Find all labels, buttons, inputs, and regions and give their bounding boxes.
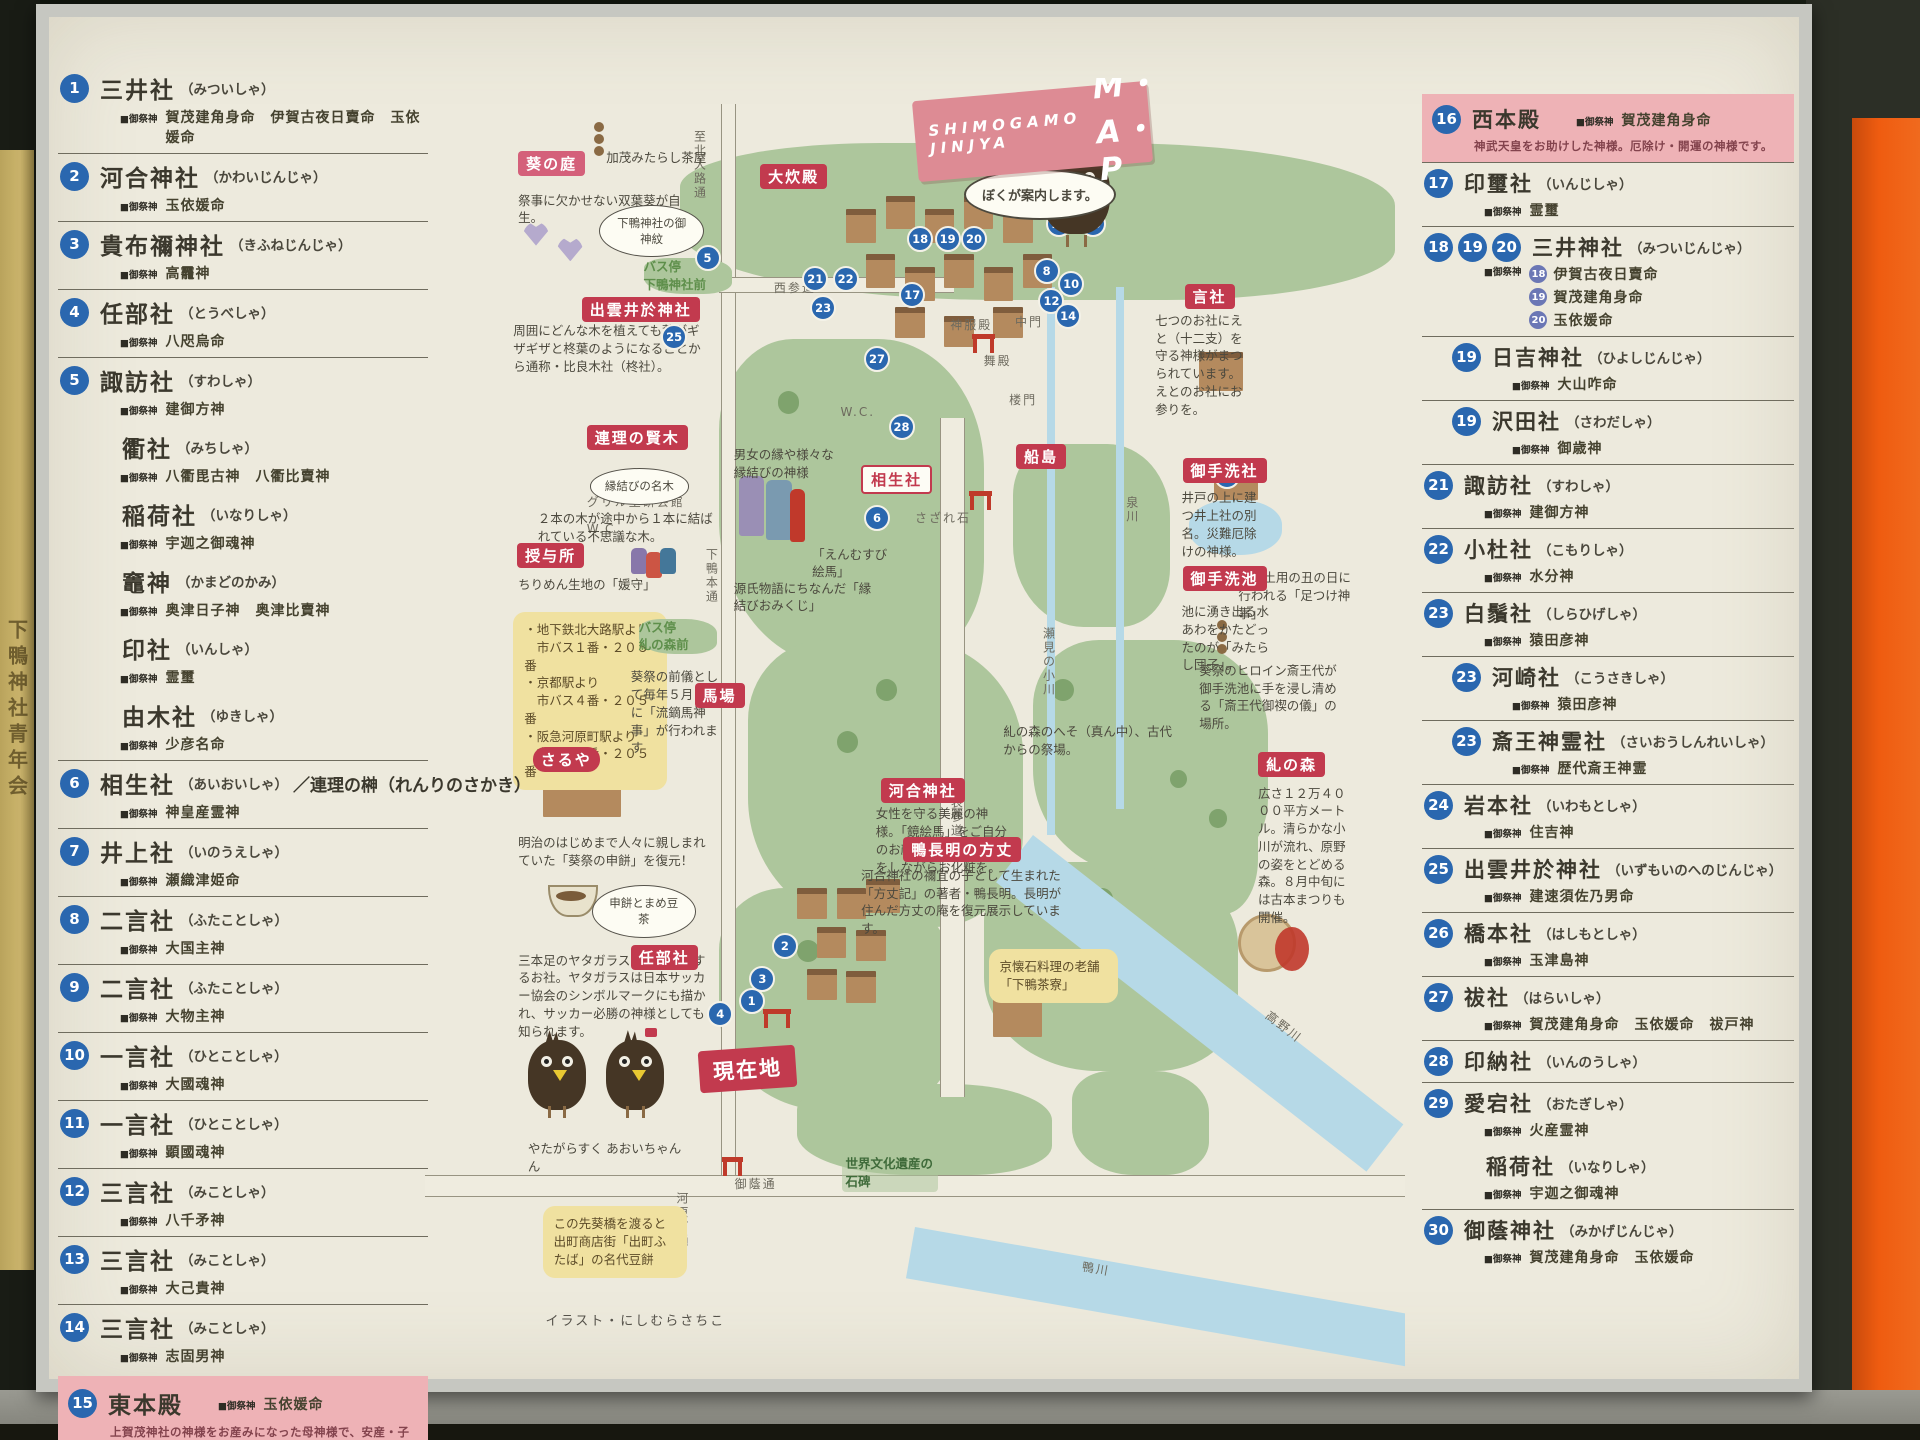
deity-names: 神皇産霊神 — [165, 802, 240, 822]
side-sign: 下鴨神社青年会 — [0, 150, 34, 1270]
deity-names: 玉依媛命 — [263, 1394, 323, 1414]
map-note: ２本の木が途中から１本に結ばれている不思議な木。 — [538, 510, 714, 546]
deity-names: 宇迦之御魂神 — [1529, 1183, 1619, 1203]
shrine-list-item: 24岩本社（いわもとしゃ）■御祭神住吉神 — [1422, 784, 1794, 848]
shrine-name: 西本殿 — [1472, 104, 1541, 134]
number-badge: 3 — [60, 230, 89, 259]
shrine-note: 上賀茂神社の神様をお産みになった母神様で、安産・子育ての神様です。 — [110, 1424, 418, 1440]
map-note: 縁結びの名木 — [590, 468, 690, 504]
shrine-reading: （ひとことしゃ） — [180, 1113, 288, 1133]
gosaijin-label: ■御祭神 — [1484, 1124, 1521, 1138]
shrine-reading: （みちしゃ） — [177, 437, 258, 457]
shrine-name: 三井神社 — [1532, 232, 1624, 262]
shrine-list-item: 29愛宕社（おたぎしゃ）■御祭神火産霊神 — [1422, 1082, 1794, 1146]
deity-names: 霊璽 — [165, 667, 195, 687]
map-note: 葵祭の前儀として毎年５月３日に「流鏑馬神事」が行われます — [631, 668, 719, 757]
shrine-reading: （いなりしゃ） — [1560, 1156, 1655, 1176]
shrine-name: 三井社 — [100, 71, 175, 105]
shrine-reading: （はらいしゃ） — [1515, 987, 1610, 1007]
deity-names: 建御方神 — [1529, 502, 1589, 522]
shrine-reading: （みことしゃ） — [180, 1181, 275, 1201]
ribbon-bow-icon — [645, 1028, 657, 1037]
number-badge: 19 — [1452, 407, 1481, 436]
shrine-reading: （みついしゃ） — [180, 78, 275, 98]
shrine-reading: （みついじんじゃ） — [1629, 237, 1751, 257]
sarumochi-bowl-icon — [548, 885, 598, 917]
crow-beak-icon — [632, 1070, 646, 1081]
map-note: バス停 糺の森前 — [639, 619, 717, 655]
deity-names: 建御方神 — [165, 399, 225, 419]
gosaijin-label: ■御祭神 — [218, 1398, 255, 1412]
crow-eye-icon — [562, 1056, 573, 1067]
shrine-list-item: 6相生社（あいおいしゃ）／連理の榊（れんりのさかき）■御祭神神皇産霊神 — [58, 760, 428, 828]
number-badge: 11 — [60, 1109, 89, 1138]
map-red-label: 御手洗池 — [1183, 566, 1267, 591]
shrine-list-item: 30御蔭神社（みかげじんじゃ）■御祭神賀茂建角身命 玉依媛命 — [1422, 1209, 1794, 1273]
shrine-reading: （おたぎしゃ） — [1538, 1093, 1633, 1113]
shrine-list-item: 4任部社（とうべしゃ）■御祭神八咫烏命 — [58, 289, 428, 357]
shrine-list-item: 13三言社（みことしゃ）■御祭神大己貴神 — [58, 1236, 428, 1304]
crow-leg — [626, 1106, 629, 1118]
gosaijin-label: ■御祭神 — [120, 604, 157, 618]
shrine-list-item: 26橋本社（はしもとしゃ）■御祭神玉津島神 — [1422, 912, 1794, 976]
shrine-reading: （ふたことしゃ） — [180, 977, 288, 997]
map-note: ちりめん生地の「媛守」 — [518, 576, 665, 594]
shrine-list-item: 11一言社（ひとことしゃ）■御祭神顕國魂神 — [58, 1100, 428, 1168]
gosaijin-label: ■御祭神 — [120, 537, 157, 551]
number-badge-mini: 19 — [1529, 288, 1547, 306]
number-badge: 23 — [1424, 599, 1453, 628]
street-label: 舞殿 — [984, 352, 1012, 369]
shrine-name: 印納社 — [1464, 1046, 1533, 1076]
shrine-name: 竈神 — [122, 564, 172, 598]
number-badge: 10 — [60, 1041, 89, 1070]
shrine-reading: （みことしゃ） — [180, 1317, 275, 1337]
map-note: 七つのお社にえと（十二支）を守る神様がまつられています。えとのお社にお参りを。 — [1155, 312, 1248, 419]
shrine-name: 諏訪社 — [100, 363, 175, 397]
street-label: W.C. — [841, 405, 876, 419]
deity-names: 大山咋命 — [1557, 374, 1617, 394]
map-building — [895, 307, 924, 338]
shrine-name: 岩本社 — [1464, 790, 1533, 820]
map-note: 京懐石料理の老舗「下鴨茶寮」 — [989, 949, 1119, 1003]
deity-names: 大国主神 — [165, 938, 225, 958]
gosaijin-label: ■御祭神 — [120, 1282, 157, 1296]
gosaijin-label: ■御祭神 — [120, 1078, 157, 1092]
shrine-list-item: 23白鬚社（しらひげしゃ）■御祭神猿田彦神 — [1422, 592, 1794, 656]
shrine-reading: （はしもとしゃ） — [1538, 923, 1646, 943]
shrine-list-item: 28印納社（いんのうしゃ） — [1422, 1040, 1794, 1082]
shrine-name: 三言社 — [100, 1174, 175, 1208]
street-label: 瀬見の小川 — [1040, 627, 1057, 697]
number-badge: 25 — [1424, 855, 1453, 884]
map-red-label: 授与所 — [517, 543, 584, 568]
shrine-reading: （こもりしゃ） — [1538, 539, 1633, 559]
shrine-name-suffix: ／連理の榊（れんりのさかき） — [293, 771, 531, 796]
deity-names: 賀茂建角身命 玉依媛命 — [1529, 1247, 1694, 1267]
shrine-name: 衢社 — [122, 430, 172, 464]
shrine-name: 印璽社 — [1464, 168, 1533, 198]
crow-speech-bubble: ぼくが案内します。 — [964, 169, 1116, 220]
gosaijin-label: ■御祭神 — [120, 1350, 157, 1364]
shrine-name: 祓社 — [1464, 982, 1510, 1012]
map-building — [944, 254, 973, 288]
number-badge: 30 — [1424, 1216, 1453, 1245]
number-badge: 20 — [1492, 233, 1521, 262]
map-red-label: 糺の森 — [1258, 752, 1325, 777]
deity-names: 八衢毘古神 八衢比賣神 — [165, 466, 330, 486]
crow-beak-icon — [553, 1070, 567, 1081]
omamori-cylinder-icon — [766, 480, 791, 540]
gosaijin-label: ■御祭神 — [120, 1146, 157, 1160]
map-number-badge: 28 — [889, 414, 915, 440]
gosaijin-label: ■御祭神 — [1484, 954, 1521, 968]
shrine-name: 諏訪社 — [1464, 470, 1533, 500]
orange-pole — [1852, 118, 1920, 1440]
number-badge: 9 — [60, 973, 89, 1002]
map-number-badge: 14 — [1055, 303, 1081, 329]
gosaijin-label: ■御祭神 — [1484, 570, 1521, 584]
gosaijin-label: ■御祭神 — [1484, 204, 1521, 218]
illustrator-credit: イラスト・にしむらさちこ — [546, 1313, 791, 1331]
gosaijin-label: ■御祭神 — [120, 267, 157, 281]
deity-names: 玉依媛命 — [1553, 310, 1613, 330]
gosaijin-label: ■御祭神 — [1484, 1018, 1521, 1032]
banner-map-word: M・A・P — [1090, 78, 1167, 189]
map-red-label: 鴨長明の方丈 — [903, 837, 1021, 862]
gosaijin-label: ■御祭神 — [120, 111, 157, 125]
map-red-label: 船島 — [1016, 444, 1066, 469]
shrine-list-item: 8二言社（ふたことしゃ）■御祭神大国主神 — [58, 896, 428, 964]
shrine-list-item: 19日吉神社（ひよしじんじゃ）■御祭神大山咋命 — [1422, 336, 1794, 400]
number-badge: 1 — [60, 74, 89, 103]
gosaijin-label: ■御祭神 — [1484, 1251, 1521, 1265]
map-forest — [1209, 809, 1227, 827]
shrine-reading: （いなりしゃ） — [202, 504, 297, 524]
shrine-reading: （いずもいのへのじんじゃ） — [1607, 859, 1782, 879]
map-note: 河合神社の禰宜の子として生まれた「方丈記」の著者・鴨長明。長明が住んだ方丈の庵を… — [861, 867, 1067, 938]
shrine-name: 稲荷社 — [122, 497, 197, 531]
shrine-list-item: 1三井社（みついしゃ）■御祭神賀茂建角身命 伊賀古夜日賣命 玉依媛命 — [58, 66, 428, 153]
shrine-reading: （さいおうしんれいしゃ） — [1612, 731, 1774, 751]
shrine-name: 由木社 — [122, 698, 197, 732]
number-badge: 17 — [1424, 169, 1453, 198]
crow-mascot-yata — [528, 1026, 586, 1118]
map-note: 広さ１２万４０００平方メートル。清らかな小川が流れ、原野の姿をとどめる森。８月中… — [1258, 785, 1356, 927]
crow-leg — [563, 1106, 566, 1118]
number-badge: 19 — [1452, 343, 1481, 372]
shrine-list-item: 衢社（みちしゃ）■御祭神八衢毘古神 八衢比賣神 — [58, 425, 428, 492]
shrine-list-item: 竈神（かまどのかみ）■御祭神奥津日子神 奥津比賣神 — [58, 559, 428, 626]
crow-mascot-aoi — [606, 1026, 664, 1118]
map-note: 加茂みたらし茶屋 — [606, 149, 724, 167]
number-badge: 7 — [60, 837, 89, 866]
shrine-name: 貴布禰神社 — [100, 227, 225, 261]
shrine-list-item: 3貴布禰神社（きふねじんじゃ）■御祭神高龗神 — [58, 221, 428, 289]
right-shrine-list: 16西本殿■御祭神賀茂建角身命神武天皇をお助けした神様。厄除け・開運の神様です。… — [1422, 90, 1794, 1386]
deity-names: 大己貴神 — [165, 1278, 225, 1298]
number-badge: 4 — [60, 298, 89, 327]
number-badge-mini: 20 — [1529, 311, 1547, 329]
shrine-name: 稲荷社 — [1486, 1151, 1555, 1181]
map-note: 申餅とまめ豆茶 — [592, 885, 696, 938]
map-building — [817, 927, 846, 958]
deity-names: 玉依媛命 — [165, 195, 225, 215]
shrine-name: 日吉神社 — [1492, 342, 1584, 372]
shrine-name: 相生社 — [100, 766, 175, 800]
map-red-label: 大炊殿 — [760, 164, 827, 189]
shrine-list-item: 22小杜社（こもりしゃ）■御祭神水分神 — [1422, 528, 1794, 592]
shrine-list-item: 23斎王神霊社（さいおうしんれいしゃ）■御祭神歴代斎王神霊 — [1422, 720, 1794, 784]
deity-names: 御歳神 — [1557, 438, 1602, 458]
street-label: 泉川 — [1124, 496, 1141, 524]
deity-names: 瀬織津姫命 — [165, 870, 240, 890]
street-label: 下鴨本通 — [703, 548, 720, 604]
deity-names: 奥津日子神 奥津比賣神 — [165, 600, 330, 620]
map-note: あおいちゃん — [606, 1140, 684, 1158]
deity-names: 賀茂建角身命 玉依媛命 祓戸神 — [1529, 1014, 1754, 1034]
crow-eye-icon — [541, 1056, 552, 1067]
gosaijin-label: ■御祭神 — [1512, 442, 1549, 456]
omamori-cylinder-icon — [739, 476, 764, 536]
shrine-list-item: 2河合神社（かわいじんじゃ）■御祭神玉依媛命 — [58, 153, 428, 221]
gosaijin-label: ■御祭神 — [1484, 506, 1521, 520]
shrine-name: 河崎社 — [1492, 662, 1561, 692]
crow-leg — [1084, 235, 1087, 247]
deity-names: 志固男神 — [165, 1346, 225, 1366]
map-note: 世界文化遺産の石碑 — [842, 1153, 938, 1193]
number-badge: 22 — [1424, 535, 1453, 564]
omamori-cylinder-icon — [790, 489, 806, 541]
shrine-name: 一言社 — [100, 1106, 175, 1140]
map-number-badge: 5 — [695, 245, 721, 271]
deity-names: 霊璽 — [1529, 200, 1559, 220]
shrine-name: 出雲井於神社 — [1464, 854, 1602, 884]
shrine-name: 任部社 — [100, 295, 175, 329]
number-badge: 15 — [68, 1389, 97, 1418]
shrine-name: 印社 — [122, 631, 172, 665]
deity-names: 八咫烏命 — [165, 331, 225, 351]
shrine-list-item: 15東本殿■御祭神玉依媛命上賀茂神社の神様をお産みになった母神様で、安産・子育て… — [58, 1376, 428, 1440]
shrine-reading: （しらひげしゃ） — [1538, 603, 1646, 623]
map-red-label: 御手洗社 — [1183, 458, 1267, 483]
shrine-name: 一言社 — [100, 1038, 175, 1072]
map-note: 井戸の上に建つ井上社の別名。災難厄除けの神様。 — [1182, 489, 1260, 560]
deity-names: 賀茂建角身命 伊賀古夜日賣命 玉依媛命 — [165, 107, 426, 147]
deity-names: 賀茂建角身命 — [1621, 110, 1711, 130]
map-number-badge: 18 — [907, 226, 933, 252]
deity-names: 伊賀古夜日賣命 — [1553, 264, 1658, 284]
crow-eye-icon — [619, 1056, 630, 1067]
deity-names: 住吉神 — [1529, 822, 1574, 842]
gosaijin-label: ■御祭神 — [1576, 114, 1613, 128]
shrine-reading: （とうべしゃ） — [180, 302, 275, 322]
map-number-badge: 17 — [899, 282, 925, 308]
map-red-label: 現在地 — [698, 1045, 798, 1094]
map-note: 源氏物語にちなんだ「縁結びおみくじ」 — [734, 580, 876, 616]
shrine-list-item: 25出雲井於神社（いずもいのへのじんじゃ）■御祭神建速須佐乃男命 — [1422, 848, 1794, 912]
shrine-reading: （ひよしじんじゃ） — [1589, 347, 1711, 367]
street-label: 御蔭通 — [735, 1175, 777, 1192]
shrine-name: 御蔭神社 — [1464, 1215, 1556, 1245]
gosaijin-label: ■御祭神 — [1484, 890, 1521, 904]
shrine-note: 神武天皇をお助けした神様。厄除け・開運の神様です。 — [1474, 138, 1784, 154]
shrine-list-item: 23河崎社（こうさきしゃ）■御祭神猿田彦神 — [1422, 656, 1794, 720]
map-forest — [1013, 444, 1170, 627]
shrine-reading: （いんじしゃ） — [1538, 173, 1633, 193]
shrine-reading: （きふねじんじゃ） — [230, 234, 352, 254]
map-note: 明治のはじめまで人々に親しまれていた「葵祭の申餅」を復元！ — [518, 834, 709, 870]
futaba-aoi-leaf-icon — [557, 237, 583, 261]
shrine-list-item: 7井上社（いのうえしゃ）■御祭神瀬織津姫命 — [58, 828, 428, 896]
number-badge: 14 — [60, 1313, 89, 1342]
shrine-list-item: 由木社（ゆきしゃ）■御祭神少彦名命 — [58, 693, 428, 760]
shrine-name: 二言社 — [100, 970, 175, 1004]
left-shrine-list: 1三井社（みついしゃ）■御祭神賀茂建角身命 伊賀古夜日賣命 玉依媛命2河合神社（… — [58, 66, 428, 1388]
number-badge: 19 — [1458, 233, 1487, 262]
number-badge: 28 — [1424, 1047, 1453, 1076]
gosaijin-label: ■御祭神 — [120, 874, 157, 888]
shrine-name: 愛宕社 — [1464, 1088, 1533, 1118]
map-note: この先葵橋を渡ると出町商店街「出町ふたば」の名代豆餅 — [543, 1206, 688, 1277]
torii-icon — [972, 334, 996, 352]
shrine-list-item: 17印璽社（いんじしゃ）■御祭神霊璽 — [1422, 162, 1794, 226]
map-forest — [778, 391, 800, 413]
gosaijin-label: ■御祭神 — [120, 1010, 157, 1024]
gosaijin-label: ■御祭神 — [1512, 378, 1549, 392]
map-note: 「えんむすび絵馬」 — [812, 546, 890, 582]
omamori-charm-icon — [646, 552, 662, 578]
torii-icon — [722, 1157, 744, 1175]
shrine-list-item: 10一言社（ひとことしゃ）■御祭神大國魂神 — [58, 1032, 428, 1100]
shrine-reading: （ゆきしゃ） — [202, 705, 283, 725]
crow-eye-icon — [641, 1056, 652, 1067]
deity-names: 建速須佐乃男命 — [1529, 886, 1634, 906]
map-title-banner: SHIMOGAMO JINJYA M・A・P — [912, 81, 1153, 182]
map-number-badge: 1 — [739, 988, 765, 1014]
number-badge: 18 — [1424, 233, 1453, 262]
shrine-name: 三言社 — [100, 1242, 175, 1276]
map-forest — [876, 679, 898, 701]
shrine-name: 河合神社 — [100, 159, 200, 193]
omamori-charm-icon — [660, 548, 676, 574]
map-red-label: 任部社 — [631, 945, 698, 970]
map-red-label: 河合神社 — [881, 778, 965, 803]
shrine-list-item: 印社（いんしゃ）■御祭神霊璽 — [58, 626, 428, 693]
map-number-badge: 19 — [935, 226, 961, 252]
map-building — [846, 209, 875, 243]
illustrated-map: SHIMOGAMO JINJYA M・A・P ぼくが案内します。 葵の庭出雲井於… — [425, 78, 1405, 1384]
map-number-badge: 27 — [864, 346, 890, 372]
gosaijin-label: ■御祭神 — [120, 470, 157, 484]
gosaijin-label: ■御祭神 — [120, 806, 157, 820]
number-badge: 29 — [1424, 1089, 1453, 1118]
shrine-list-item: 19沢田社（さわだしゃ）■御祭神御歳神 — [1422, 400, 1794, 464]
street-label: 楼門 — [1009, 391, 1037, 408]
shrine-reading: （いのうえしゃ） — [180, 841, 288, 861]
map-number-badge: 23 — [810, 295, 836, 321]
shrine-name: 三言社 — [100, 1310, 175, 1344]
number-badge: 12 — [60, 1177, 89, 1206]
street-label: 中門 — [1015, 313, 1043, 330]
shrine-list-item: 181920三井神社（みついじんじゃ）■御祭神18伊賀古夜日賣命19賀茂建角身命… — [1422, 226, 1794, 336]
shrine-reading: （こうさきしゃ） — [1566, 667, 1674, 687]
side-sign-text: 下鴨神社青年会 — [3, 619, 32, 801]
gosaijin-label: ■御祭神 — [120, 738, 157, 752]
shrine-reading: （すわしゃ） — [1538, 475, 1619, 495]
number-badge: 13 — [60, 1245, 89, 1274]
map-red-label: 連理の賢木 — [587, 425, 688, 450]
deity-names: 歴代斎王神霊 — [1557, 758, 1647, 778]
gosaijin-label: ■御祭神 — [1484, 264, 1521, 330]
deity-names: 大物主神 — [165, 1006, 225, 1026]
number-badge: 6 — [60, 769, 89, 798]
number-badge: 23 — [1452, 727, 1481, 756]
shrine-list-item: 21諏訪社（すわしゃ）■御祭神建御方神 — [1422, 464, 1794, 528]
map-forest — [1150, 744, 1258, 914]
map-number-badge: 22 — [833, 266, 859, 292]
crow-leg — [642, 1106, 645, 1118]
gosaijin-label: ■御祭神 — [1512, 698, 1549, 712]
number-badge: 2 — [60, 162, 89, 191]
number-badge: 27 — [1424, 983, 1453, 1012]
map-building — [846, 971, 875, 1002]
banner-shrine-name: SHIMOGAMO JINJYA — [928, 109, 1084, 158]
shrine-reading: （ひとことしゃ） — [180, 1045, 288, 1065]
shrine-reading: （いんしゃ） — [177, 638, 258, 658]
number-badge: 8 — [60, 905, 89, 934]
shrine-reading: （いんのうしゃ） — [1538, 1051, 1646, 1071]
shrine-list-item: 16西本殿■御祭神賀茂建角身命神武天皇をお助けした神様。厄除け・開運の神様です。 — [1422, 94, 1794, 162]
map-red-label: 言社 — [1185, 284, 1235, 309]
shrine-reading: （あいおいしゃ） — [180, 773, 288, 793]
map-red-label: 馬場 — [695, 683, 745, 708]
shrine-name: 斎王神霊社 — [1492, 726, 1607, 756]
map-building — [886, 196, 915, 230]
deity-names: 猿田彦神 — [1529, 630, 1589, 650]
deity-names: 水分神 — [1529, 566, 1574, 586]
deity-names: 大國魂神 — [165, 1074, 225, 1094]
gosaijin-label: ■御祭神 — [120, 199, 157, 213]
gosaijin-label: ■御祭神 — [1512, 762, 1549, 776]
dango-skewer-icon — [594, 122, 604, 156]
number-badge: 21 — [1424, 471, 1453, 500]
torii-icon — [969, 491, 993, 509]
shrine-list-item: 12三言社（みことしゃ）■御祭神八千矛神 — [58, 1168, 428, 1236]
map-number-badge: 8 — [1034, 258, 1060, 284]
shrine-reading: （みことしゃ） — [180, 1249, 275, 1269]
shrine-name: 白鬚社 — [1464, 598, 1533, 628]
map-note: 葵祭のヒロイン斎王代が御手洗池に手を浸し清める「斎王代御禊の儀」の場所。 — [1199, 662, 1341, 733]
street-label: 神服殿 — [950, 316, 992, 333]
map-red-label: 出雲井於神社 — [582, 297, 700, 322]
gosaijin-label: ■御祭神 — [1484, 634, 1521, 648]
deity-names: 宇迦之御魂神 — [165, 533, 255, 553]
gosaijin-label: ■御祭神 — [1484, 826, 1521, 840]
shrine-list-item: 稲荷社（いなりしゃ）■御祭神宇迦之御魂神 — [58, 492, 428, 559]
deity-names: 玉津島神 — [1529, 950, 1589, 970]
shrine-name: 橋本社 — [1464, 918, 1533, 948]
shrine-list-item: 稲荷社（いなりしゃ）■御祭神宇迦之御魂神 — [1422, 1146, 1794, 1209]
deity-names: 顕國魂神 — [165, 1142, 225, 1162]
number-badge: 24 — [1424, 791, 1453, 820]
number-badge-mini: 18 — [1529, 265, 1547, 283]
number-badge: 23 — [1452, 663, 1481, 692]
map-water — [906, 1227, 1405, 1374]
shrine-reading: （すわしゃ） — [180, 370, 261, 390]
number-badge: 26 — [1424, 919, 1453, 948]
map-note: やたがらすくん — [528, 1140, 606, 1176]
